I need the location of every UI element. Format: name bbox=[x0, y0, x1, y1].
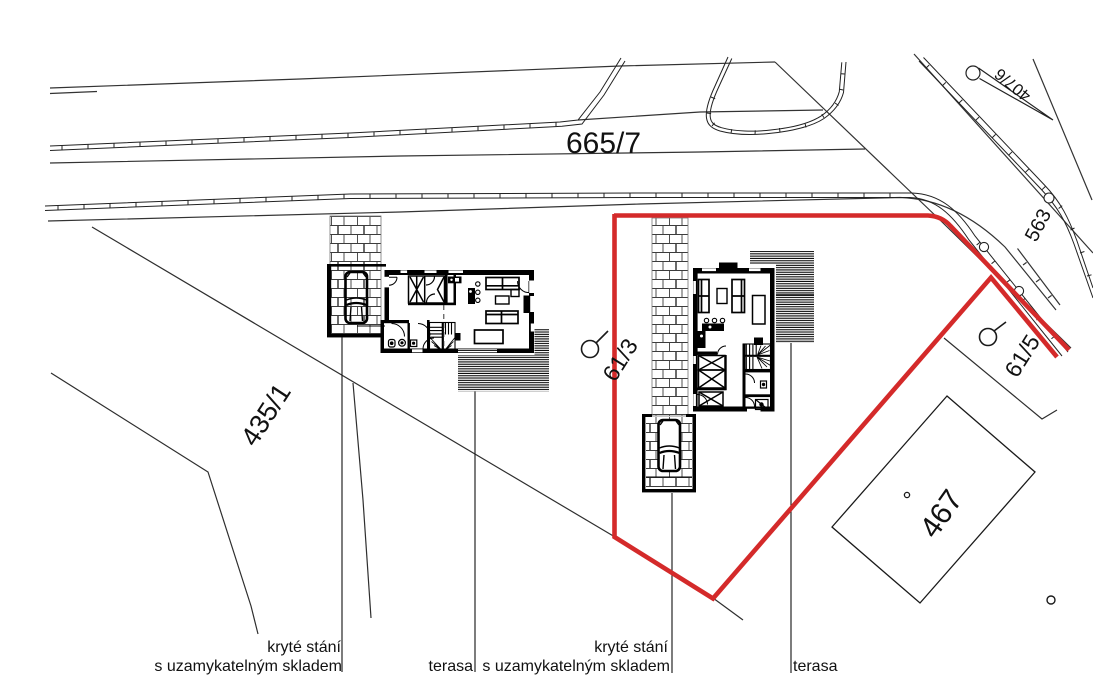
svg-text:kryté stání: kryté stání bbox=[594, 639, 668, 656]
svg-text:665/7: 665/7 bbox=[566, 127, 641, 160]
svg-text:kryté stání: kryté stání bbox=[267, 639, 341, 656]
svg-text:terasa: terasa bbox=[793, 658, 838, 675]
svg-text:s uzamykatelným skladem: s uzamykatelným skladem bbox=[154, 658, 342, 675]
svg-text:terasa: terasa bbox=[429, 658, 474, 675]
svg-text:s uzamykatelným skladem: s uzamykatelným skladem bbox=[482, 658, 670, 675]
